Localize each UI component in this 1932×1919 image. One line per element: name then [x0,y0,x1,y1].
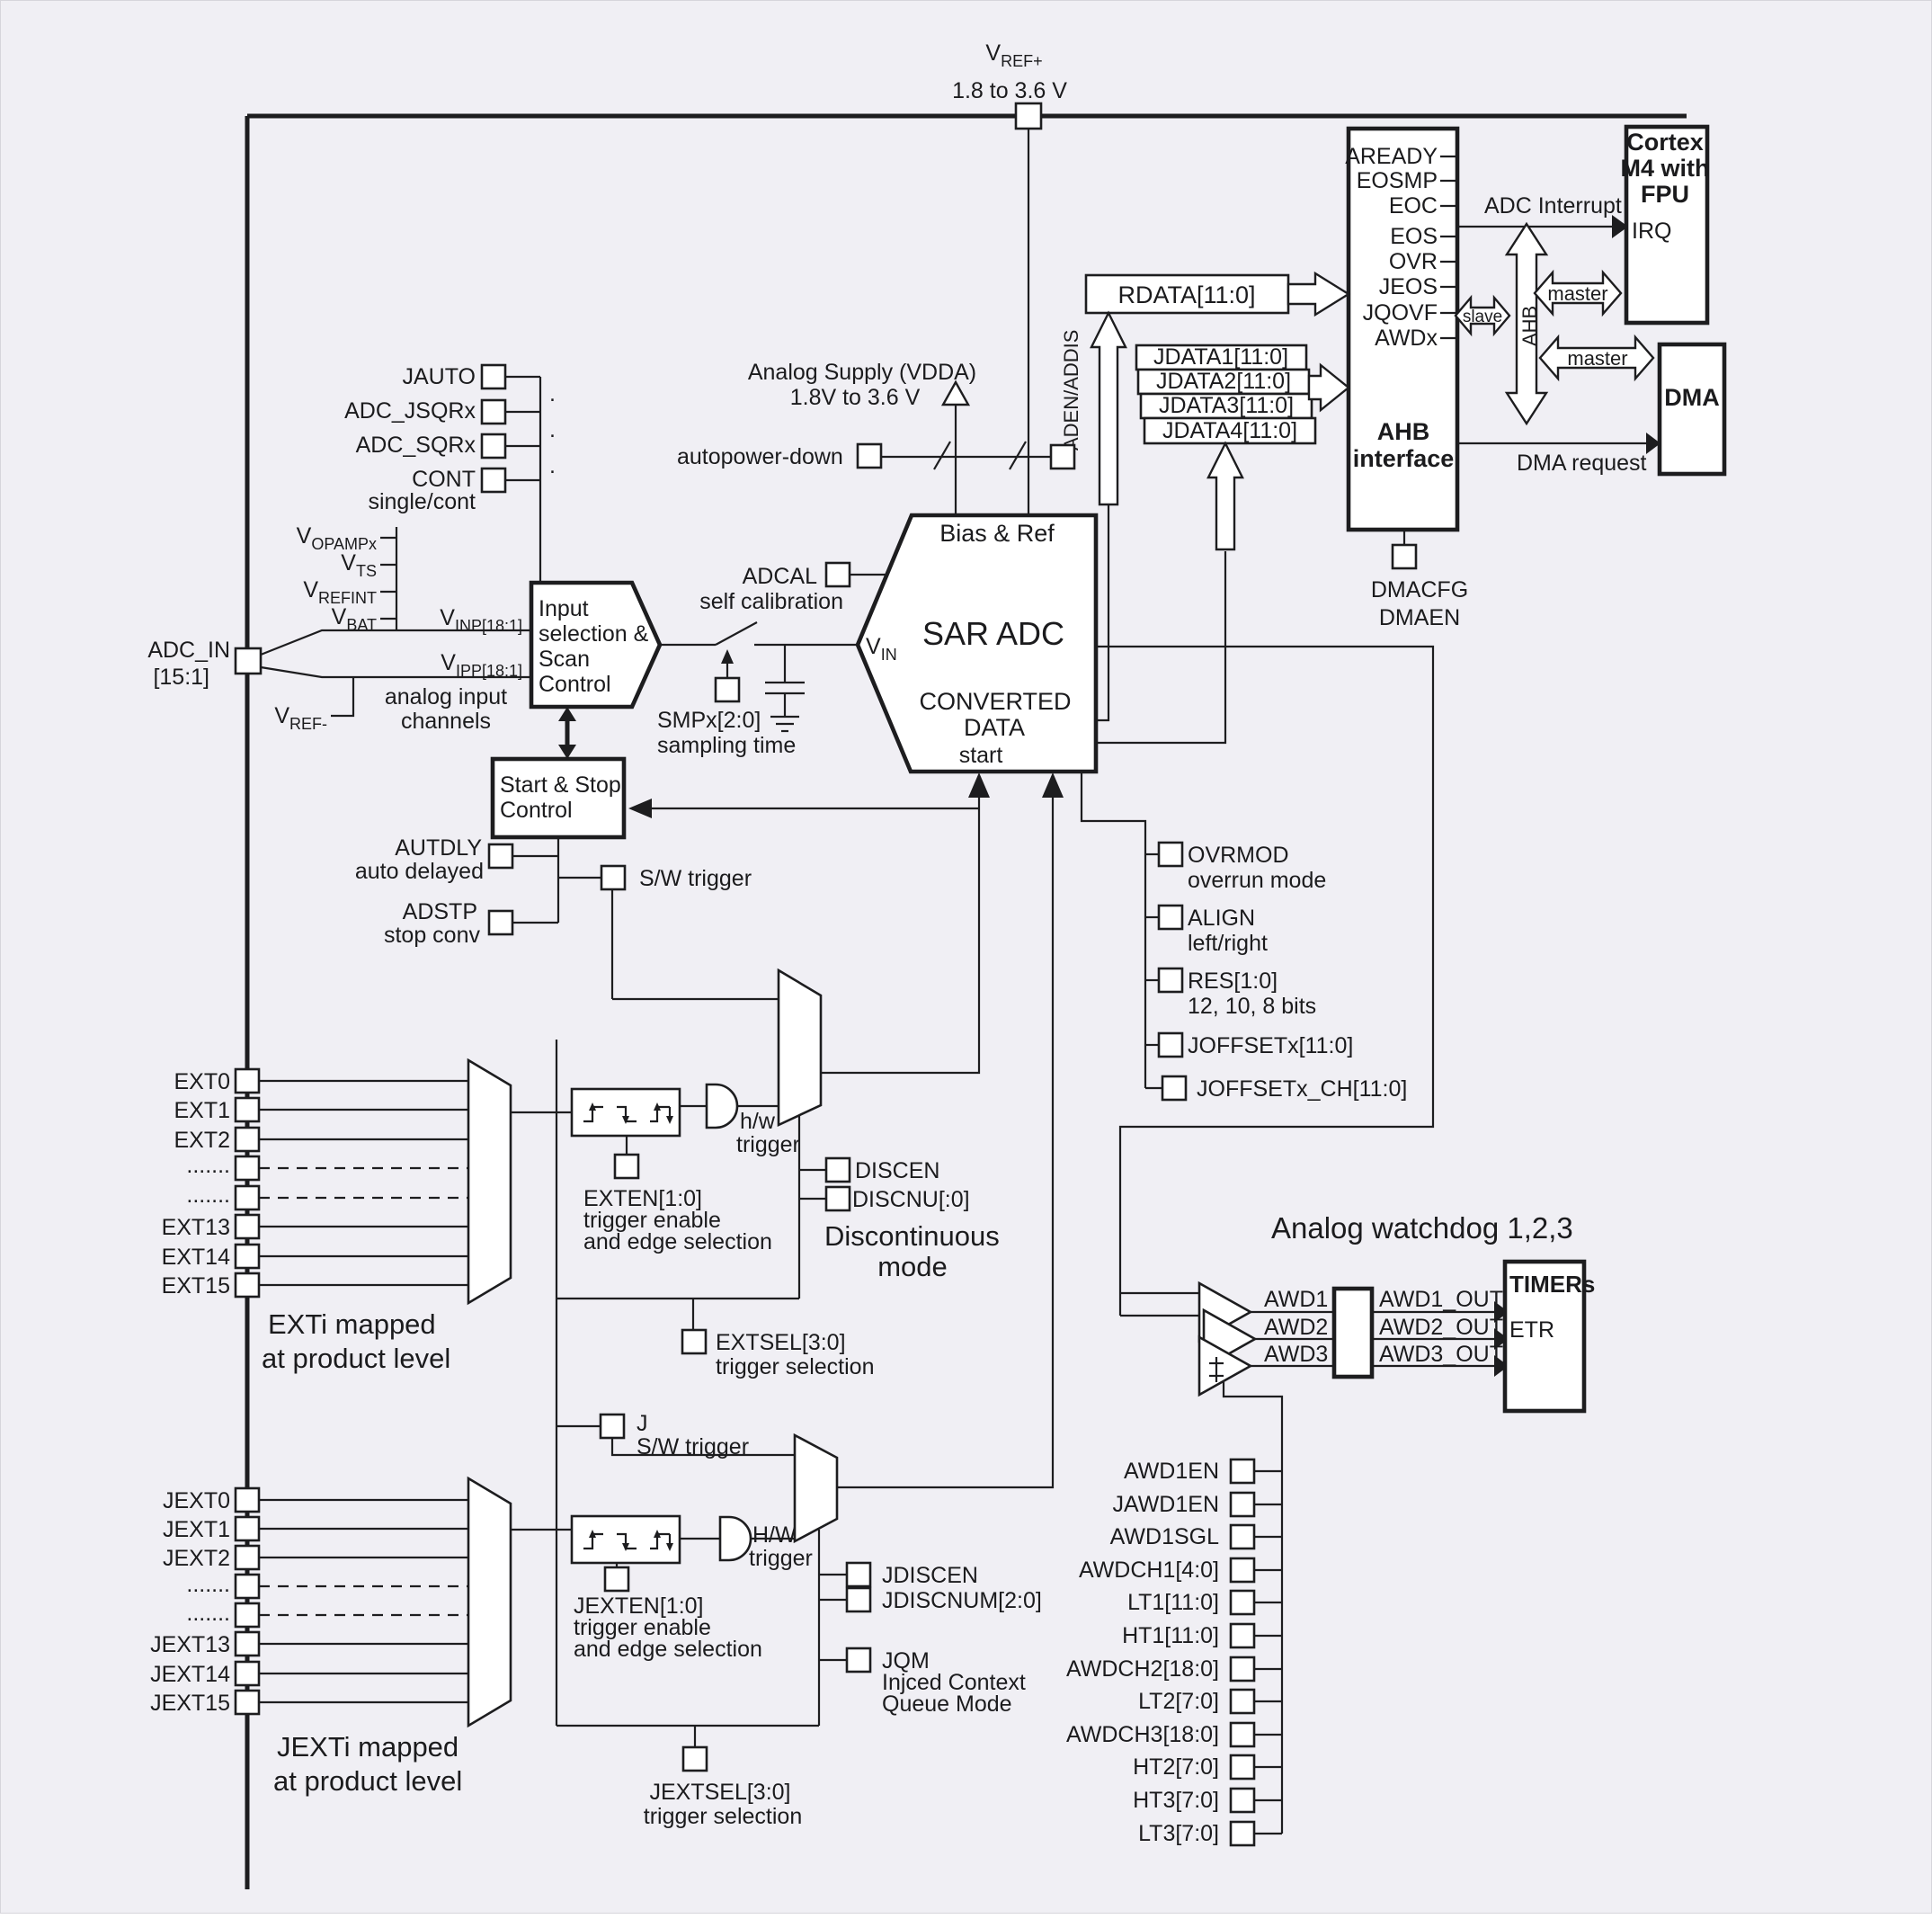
svg-text:.: . [549,453,556,478]
svg-text:ADC Interrupt: ADC Interrupt [1484,193,1622,219]
vref-plus-pin: VREF+ 1.8 to 3.6 V [952,40,1067,457]
svg-text:JDATA3[11:0]: JDATA3[11:0] [1159,393,1294,418]
svg-text:AWDCH2[18:0]: AWDCH2[18:0] [1066,1656,1219,1682]
hw-trigger-label-2: trigger [736,1132,800,1157]
svg-text:JDATA4[11:0]: JDATA4[11:0] [1162,418,1297,443]
svg-text:12, 10, 8 bits: 12, 10, 8 bits [1188,994,1316,1019]
smp-time-label: sampling time [657,733,796,758]
svg-text:FPU: FPU [1641,181,1689,208]
svg-text:Input: Input [539,596,589,621]
vdda-arrow [943,382,968,405]
watchdog-title: Analog watchdog 1,2,3 [1271,1211,1573,1245]
svg-text:.......: ....... [186,1153,230,1178]
adc-in-label: ADC_IN [147,638,230,663]
svg-text:Scan: Scan [539,647,590,672]
svg-text:JEXTSEL[3:0]: JEXTSEL[3:0] [649,1780,790,1805]
svg-text:OVR: OVR [1389,249,1438,274]
svg-text:auto delayed: auto delayed [355,859,484,884]
svg-text:EXT1: EXT1 [174,1098,230,1123]
ext-mux [468,1060,511,1303]
jhw-trigger-and-gate [720,1517,751,1560]
svg-text:AWD2_OUT: AWD2_OUT [1379,1315,1503,1340]
vin-sub: IN [881,646,897,664]
svg-text:AWD1SGL: AWD1SGL [1110,1524,1219,1549]
svg-text:Analog Supply (VDDA): Analog Supply (VDDA) [748,360,976,385]
ext-mapped-label-2: at product level [262,1343,450,1374]
svg-text:HT3[7:0]: HT3[7:0] [1133,1788,1219,1813]
hw-trigger-label-1: h/w [740,1109,776,1134]
svg-text:AWD3_OUT: AWD3_OUT [1379,1342,1503,1367]
svg-text:JAUTO: JAUTO [403,364,476,389]
svg-text:EOSMP: EOSMP [1357,168,1438,193]
ahb-interface-block: AREADY EOSMP EOC EOS OVR JEOS JQOVF AWDx… [1345,129,1457,530]
slave-arrow: slave [1456,298,1509,334]
jhw-trigger-label-2: trigger [749,1546,813,1571]
svg-text:EXT13: EXT13 [162,1215,230,1240]
master-arrow-cpu: master [1535,272,1621,314]
watchdog-comparators [1199,1283,1255,1395]
vref-sub: REF+ [1001,52,1043,70]
svg-text:and edge selection: and edge selection [574,1637,762,1662]
svg-text:JOFFSETx[11:0]: JOFFSETx[11:0] [1188,1033,1353,1058]
svg-text:LT3[7:0]: LT3[7:0] [1138,1821,1219,1846]
svg-text:Control: Control [539,672,611,697]
svg-text:.......: ....... [186,1572,230,1597]
svg-text:AWDCH3[18:0]: AWDCH3[18:0] [1066,1722,1219,1747]
start-stop-block: Start & Stop Control [493,707,624,837]
vin-label: V [866,634,881,659]
svg-text:HT2[7:0]: HT2[7:0] [1133,1754,1219,1780]
svg-text:VIPP[18:1]: VIPP[18:1] [441,650,522,680]
rdata-feed-arrow [1091,313,1126,504]
jext-mux [468,1478,511,1726]
svg-text:AWDCH1[4:0]: AWDCH1[4:0] [1079,1558,1219,1583]
svg-text:DISCEN: DISCEN [855,1158,939,1183]
svg-text:Control: Control [500,798,573,823]
discontinuous-mode-label: mode [877,1251,948,1282]
svg-text:CONT: CONT [412,467,476,492]
sampling-network: SMPx[2:0] sampling time [657,622,858,758]
sar-adc-title: SAR ADC [922,615,1064,652]
svg-text:ALIGN: ALIGN [1188,906,1255,931]
watchdog-flag-register [1334,1289,1372,1377]
svg-text:RES[1:0]: RES[1:0] [1188,968,1278,994]
svg-text:AWD1: AWD1 [1264,1287,1328,1312]
svg-text:master: master [1567,347,1627,370]
watchdog-config-pins: AWD1EN JAWD1EN AWD1SGL AWDCH1[4:0] LT1[1… [1066,1382,1282,1846]
svg-text:CONVERTED: CONVERTED [919,688,1071,715]
svg-text:JDATA1[11:0]: JDATA1[11:0] [1153,344,1288,370]
analog-inputs: VOPAMPx VTS VREFINT VBAT ADC_IN [15:1] V… [147,523,531,734]
svg-text:JDATA2[11:0]: JDATA2[11:0] [1156,369,1291,394]
cortex-block: Cortex M4 with FPU IRQ [1621,127,1710,323]
start-stop-pins: AUTDLY auto delayed ADSTP stop conv S/W … [355,835,752,999]
svg-text:RDATA[11:0]: RDATA[11:0] [1117,281,1255,308]
svg-text:slave: slave [1463,308,1502,326]
jdata-feed-arrow [1208,443,1242,549]
svg-text:AUTDLY: AUTDLY [395,835,482,861]
discontinuous-label: Discontinuous [824,1220,1000,1252]
jext-trigger-section: J S/W trigger JEXT0 JEXT1 JEXT2 ....... … [150,1411,1042,1829]
svg-text:HT1[11:0]: HT1[11:0] [1122,1623,1219,1648]
jext-mapped-label-2: at product level [273,1765,462,1797]
svg-text:ADC_JSQRx: ADC_JSQRx [344,398,476,424]
svg-text:DMACFG: DMACFG [1371,577,1468,602]
svg-text:DISCNU[:0]: DISCNU[:0] [852,1187,970,1212]
svg-text:VREF-: VREF- [274,703,327,733]
svg-text:start: start [959,743,1003,768]
svg-text:JAWD1EN: JAWD1EN [1112,1492,1219,1517]
svg-text:ADSTP: ADSTP [403,899,477,924]
config-chain: OVRMOD overrun mode ALIGN left/right RES… [1082,772,1407,1102]
svg-text:JQOVF: JQOVF [1363,300,1438,326]
svg-text:Cortex: Cortex [1626,129,1704,156]
discontinuous-pins: DISCEN DISCNU[:0] Discontinuous mode [799,1115,1000,1299]
svg-text:EXT15: EXT15 [162,1273,230,1299]
jhw-trigger-label-1: H/W [752,1522,797,1548]
svg-text:ADCAL: ADCAL [743,564,817,589]
vref-range: 1.8 to 3.6 V [952,78,1067,103]
jdisc-pins: JDISCEN JDISCNUM[2:0] JQM Injced Context… [819,1530,1042,1726]
svg-text:VREFINT: VREFINT [303,577,377,607]
timers-block: TIMERs ETR [1505,1262,1595,1411]
svg-text:VOPAMPx: VOPAMPx [297,523,377,553]
svg-text:DMAEN: DMAEN [1379,605,1460,630]
jext-pins: JEXT0 JEXT1 JEXT2 ....... ....... JEXT13… [150,1488,468,1716]
svg-text:AWD1_OUT: AWD1_OUT [1379,1287,1503,1312]
svg-text:EXTSEL[3:0]: EXTSEL[3:0] [716,1330,846,1355]
svg-text:Start & Stop: Start & Stop [500,772,621,798]
svg-text:AWDx: AWDx [1375,326,1438,351]
svg-text:master: master [1547,282,1607,305]
rdata-to-ahb-arrow [1288,273,1349,315]
svg-text:DMA request: DMA request [1517,451,1647,476]
svg-text:TIMERs: TIMERs [1509,1271,1595,1298]
smp-label: SMPx[2:0] [657,708,761,733]
svg-text:trigger selection: trigger selection [644,1804,802,1829]
svg-text:ADEN/ADDIS: ADEN/ADDIS [1060,330,1082,451]
ahb-bus-arrow: AHB [1507,224,1546,424]
svg-text:overrun mode: overrun mode [1188,868,1326,893]
adc-in-range: [15:1] [153,665,209,690]
svg-text:DATA: DATA [964,714,1025,741]
trigger-type-mux [779,970,821,1125]
svg-text:OVRMOD: OVRMOD [1188,843,1289,868]
svg-text:ADC_SQRx: ADC_SQRx [356,433,476,458]
dmacfg-pin: DMACFG DMAEN [1371,530,1468,630]
adc-interrupt-arrow: ADC Interrupt [1457,193,1628,238]
jtrigger-type-mux [795,1435,837,1541]
diagram-canvas: VREF+ 1.8 to 3.6 V AREADY EOSMP EOC EOS … [1,1,1932,1915]
svg-text:EXT0: EXT0 [174,1069,230,1094]
adc-block-diagram: VREF+ 1.8 to 3.6 V AREADY EOSMP EOC EOS … [0,0,1932,1914]
svg-text:DMA: DMA [1664,384,1720,411]
svg-text:LT2[7:0]: LT2[7:0] [1138,1689,1219,1714]
svg-text:JEXT15: JEXT15 [150,1691,230,1716]
svg-text:JEXT2: JEXT2 [163,1546,230,1571]
svg-text:.......: ....... [186,1601,230,1626]
jext-mapped-label-1: JEXTi mapped [277,1731,459,1763]
svg-text:AREADY: AREADY [1345,144,1438,169]
svg-text:EOC: EOC [1389,193,1438,219]
svg-text:LT1[11:0]: LT1[11:0] [1127,1590,1219,1615]
svg-text:JEXT1: JEXT1 [163,1517,230,1542]
svg-text:EOS: EOS [1390,224,1438,249]
svg-text:single/cont: single/cont [368,489,476,514]
svg-text:and edge selection: and edge selection [583,1229,772,1254]
etr-label: ETR [1509,1317,1554,1343]
svg-text:M4 with: M4 with [1621,155,1710,182]
svg-text:JEXT0: JEXT0 [163,1488,230,1513]
svg-text:selection &: selection & [539,621,649,647]
vref-label: V [985,40,1001,66]
svg-text:J: J [637,1411,648,1436]
svg-text:EXT2: EXT2 [174,1128,230,1153]
analog-watchdog-section: Analog watchdog 1,2,3 AWD1 AWD2 AWD3 AWD… [1066,1211,1595,1846]
svg-text:trigger selection: trigger selection [716,1354,874,1379]
analog-supply: Analog Supply (VDDA) 1.8V to 3.6 V autop… [677,360,1051,515]
svg-text:.......: ....... [186,1183,230,1208]
svg-text:left/right: left/right [1188,931,1268,956]
svg-text:1.8V to 3.6 V: 1.8V to 3.6 V [790,385,921,410]
ahb-bus-label: AHB [1518,306,1541,346]
sw-trigger-label: S/W trigger [639,866,752,891]
irq-label: IRQ [1632,219,1671,244]
master-arrow-dma: master [1540,337,1653,379]
svg-text:VTS: VTS [341,550,377,580]
input-selection-block: Input selection & Scan Control [531,583,660,707]
jextsel-pin: JEXTSEL[3:0] trigger selection [556,1726,819,1829]
ahb-title-2: interface [1353,445,1455,472]
jdata-to-ahb-arrow [1309,365,1349,410]
svg-text:JEOS: JEOS [1379,274,1438,299]
svg-text:JDISCEN: JDISCEN [882,1563,978,1588]
adcal-pin: ADCAL self calibration [699,563,886,614]
dma-request-arrow: DMA request [1457,433,1660,476]
ext-mapped-label-1: EXTi mapped [268,1308,436,1340]
aden-addis-pin: ADEN/ADDIS [1051,330,1082,469]
hw-trigger-and-gate [707,1084,737,1128]
svg-text:JEXT14: JEXT14 [150,1662,230,1687]
svg-text:channels: channels [401,709,491,734]
bias-ref-label: Bias & Ref [939,520,1055,547]
svg-text:.: . [549,417,556,442]
svg-text:self calibration: self calibration [699,589,843,614]
svg-text:AWD3: AWD3 [1264,1342,1328,1367]
svg-text:AWD2: AWD2 [1264,1315,1328,1340]
dma-block: DMA [1660,344,1724,474]
jsw-trigger-pin: J S/W trigger [556,1411,795,1459]
ahb-title-1: AHB [1377,418,1430,445]
svg-text:.: . [549,381,556,406]
svg-text:stop conv: stop conv [384,923,481,948]
svg-text:Queue Mode: Queue Mode [882,1691,1012,1717]
autopower-label: autopower-down [677,444,843,469]
svg-text:JOFFSETx_CH[11:0]: JOFFSETx_CH[11:0] [1197,1076,1407,1102]
jdata-registers: JDATA1[11:0] JDATA2[11:0] JDATA3[11:0] J… [1136,344,1349,549]
svg-text:EXT14: EXT14 [162,1245,231,1270]
svg-text:AWD1EN: AWD1EN [1124,1459,1219,1484]
svg-text:JDISCNUM[2:0]: JDISCNUM[2:0] [882,1588,1042,1613]
sar-adc-block: Bias & Ref SAR ADC CONVERTED DATA start … [858,515,1096,772]
ext-pins: EXT0 EXT1 EXT2 ....... ....... EXT13 EXT… [162,1069,468,1299]
svg-text:VREF+: VREF+ [985,40,1042,70]
svg-text:JEXT13: JEXT13 [150,1632,230,1657]
svg-text:analog input: analog input [385,684,507,710]
